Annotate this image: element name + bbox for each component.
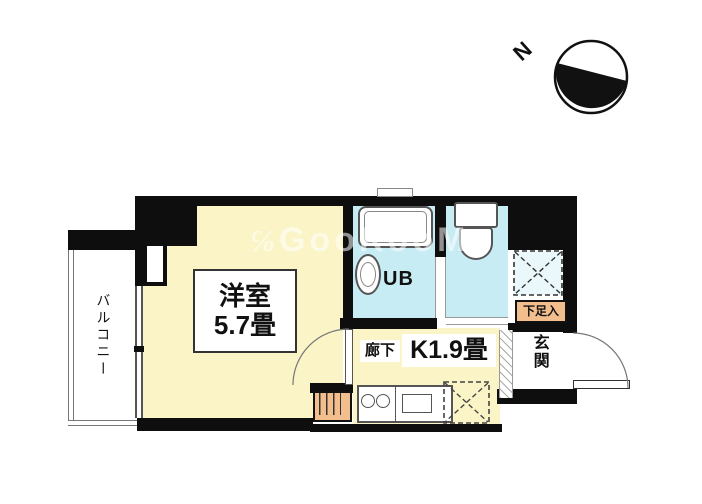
wall-unit-bath-bottom — [340, 318, 437, 329]
pipe-space-xbox — [513, 250, 563, 296]
balcony-outer-rail-left — [68, 250, 74, 422]
storage-box-slats — [319, 393, 341, 415]
watermark-prefix-glyph: ℅ — [250, 224, 279, 259]
floorplan-canvas: バルコニー UB 下足入 玄関 — [0, 0, 702, 504]
storage-box — [313, 391, 352, 422]
shoe-cupboard-box: 下足入 — [515, 300, 567, 323]
door-toilet — [446, 317, 508, 325]
entrance-label: 玄関 — [530, 334, 548, 388]
refrigerator-space-xbox — [443, 381, 490, 424]
door-unit-bath — [435, 257, 446, 318]
window-bathroom — [377, 188, 413, 197]
window-balcony — [135, 286, 143, 418]
kitchen-counter-divider — [395, 387, 396, 421]
site-watermark: ℅GooRooM — [250, 221, 469, 260]
western-room-label-box: 洋室 5.7畳 — [193, 269, 297, 353]
kitchen-label: K1.9畳 — [402, 334, 496, 367]
wall-bottom-main — [137, 418, 313, 431]
unit-bath-label: UB — [383, 268, 431, 290]
stove-burner-icon — [376, 394, 390, 408]
wall-void-notch — [147, 246, 163, 282]
wall-balcony-top — [68, 230, 137, 250]
western-room-name: 洋室 — [219, 282, 271, 311]
balcony-outer-rail-bottom — [68, 420, 137, 426]
shoe-cupboard-label: 下足入 — [523, 305, 559, 318]
watermark-text: GooRooM — [279, 221, 469, 259]
corridor-label: 廊下 — [360, 340, 400, 362]
entrance-step-hatch — [499, 330, 513, 398]
kitchen-sink-icon — [402, 394, 432, 413]
stove-burner-icon — [361, 394, 375, 408]
compass-icon — [540, 30, 640, 125]
wall-left-step-block — [165, 196, 197, 246]
western-room-size: 5.7畳 — [214, 311, 276, 340]
entrance-door-arc-icon — [565, 328, 635, 393]
window-balcony-mullion — [134, 346, 144, 352]
washbasin-inner-icon — [360, 262, 376, 287]
western-room-door-arc-icon — [290, 325, 352, 387]
balcony-label: バルコニー — [95, 293, 110, 411]
wall-bottom-kitchen — [310, 424, 502, 432]
